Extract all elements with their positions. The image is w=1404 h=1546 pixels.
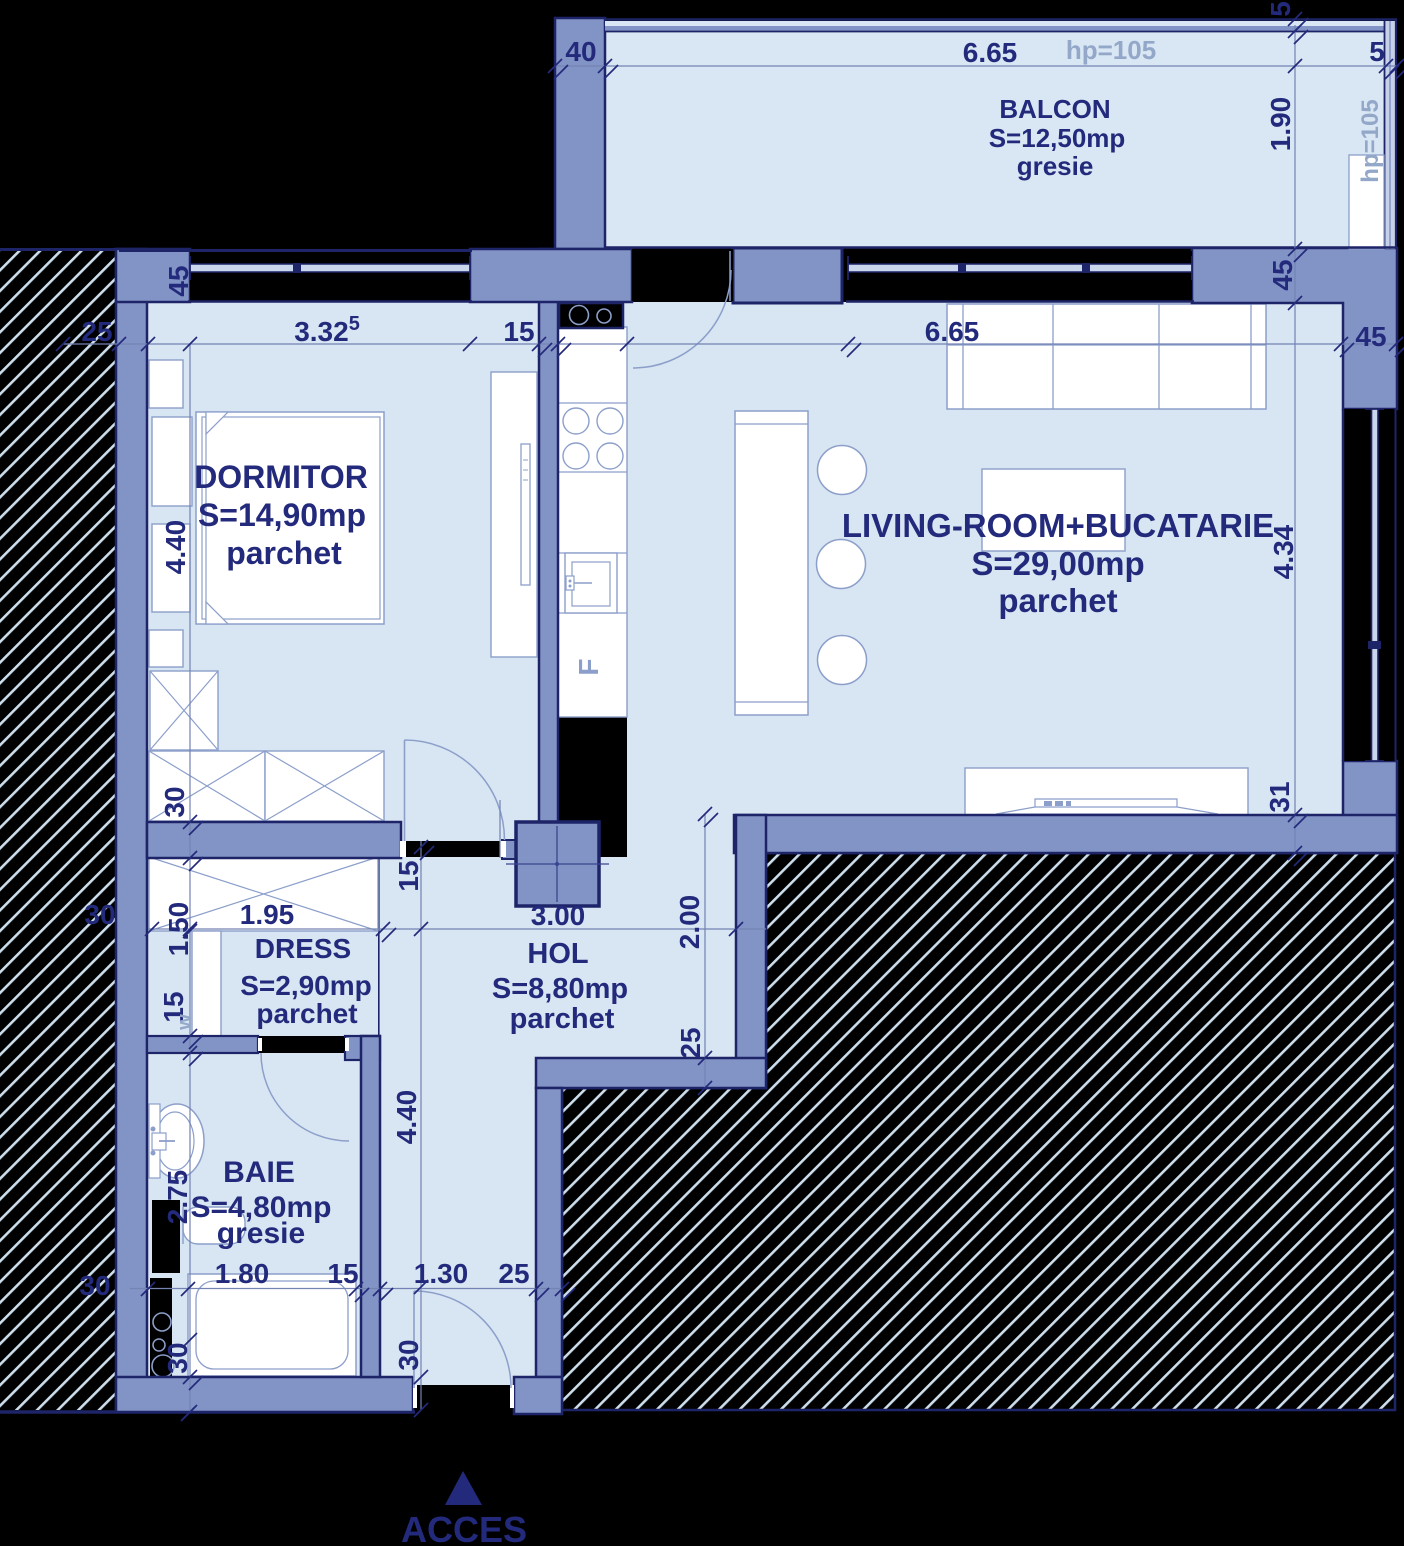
svg-text:25: 25 bbox=[498, 1258, 529, 1289]
svg-text:gresie: gresie bbox=[217, 1217, 305, 1250]
svg-text:S=14,90mp: S=14,90mp bbox=[198, 497, 366, 533]
svg-text:2.00: 2.00 bbox=[674, 895, 705, 950]
svg-text:1.95: 1.95 bbox=[240, 899, 295, 930]
svg-text:30: 30 bbox=[84, 899, 115, 930]
svg-text:parchet: parchet bbox=[510, 1003, 615, 1035]
svg-text:4.40: 4.40 bbox=[160, 520, 191, 575]
svg-text:ACCES: ACCES bbox=[401, 1509, 527, 1546]
svg-text:30: 30 bbox=[393, 1339, 424, 1370]
svg-text:S=8,80mp: S=8,80mp bbox=[492, 973, 628, 1005]
svg-text:45: 45 bbox=[1267, 259, 1298, 290]
svg-text:25: 25 bbox=[675, 1027, 706, 1058]
svg-text:6.65: 6.65 bbox=[925, 316, 980, 347]
svg-text:30: 30 bbox=[162, 1342, 193, 1373]
svg-text:DORMITOR: DORMITOR bbox=[194, 459, 368, 495]
svg-text:w: w bbox=[174, 1014, 196, 1031]
svg-text:1.80: 1.80 bbox=[215, 1258, 270, 1289]
svg-text:parchet: parchet bbox=[256, 998, 357, 1029]
svg-text:2.75: 2.75 bbox=[162, 1170, 193, 1225]
svg-text:1.30: 1.30 bbox=[414, 1258, 469, 1289]
svg-text:5: 5 bbox=[1369, 36, 1385, 67]
svg-text:LIVING-ROOM+BUCATARIE: LIVING-ROOM+BUCATARIE bbox=[842, 507, 1274, 544]
svg-text:S=12,50mp: S=12,50mp bbox=[989, 123, 1126, 153]
svg-text:6.65: 6.65 bbox=[963, 37, 1018, 68]
svg-text:hp=105: hp=105 bbox=[1066, 35, 1156, 65]
svg-text:31: 31 bbox=[1264, 781, 1295, 812]
svg-text:HOL: HOL bbox=[527, 938, 588, 970]
svg-text:15: 15 bbox=[503, 316, 534, 347]
svg-text:hp=105: hp=105 bbox=[1357, 99, 1384, 182]
svg-text:3.00: 3.00 bbox=[531, 900, 586, 931]
svg-text:S=2,90mp: S=2,90mp bbox=[240, 970, 372, 1001]
svg-text:1.50: 1.50 bbox=[163, 902, 194, 957]
svg-text:25: 25 bbox=[81, 316, 112, 347]
svg-text:parchet: parchet bbox=[226, 535, 342, 571]
svg-text:30: 30 bbox=[79, 1270, 110, 1301]
svg-text:parchet: parchet bbox=[998, 582, 1117, 619]
svg-text:15: 15 bbox=[393, 860, 424, 891]
svg-text:BAIE: BAIE bbox=[223, 1156, 295, 1189]
svg-text:F: F bbox=[573, 658, 604, 675]
svg-text:BALCON: BALCON bbox=[999, 94, 1110, 124]
svg-text:gresie: gresie bbox=[1017, 151, 1094, 181]
svg-text:30: 30 bbox=[159, 786, 190, 817]
svg-text:S=29,00mp: S=29,00mp bbox=[971, 545, 1144, 582]
svg-text:45: 45 bbox=[163, 265, 194, 296]
svg-text:DRESS: DRESS bbox=[255, 933, 351, 964]
svg-text:4.40: 4.40 bbox=[391, 1090, 422, 1145]
svg-text:40: 40 bbox=[565, 36, 596, 67]
svg-text:1.90: 1.90 bbox=[1265, 97, 1296, 152]
svg-text:45: 45 bbox=[1355, 321, 1386, 352]
svg-text:15: 15 bbox=[327, 1258, 358, 1289]
svg-text:5: 5 bbox=[1265, 1, 1296, 17]
